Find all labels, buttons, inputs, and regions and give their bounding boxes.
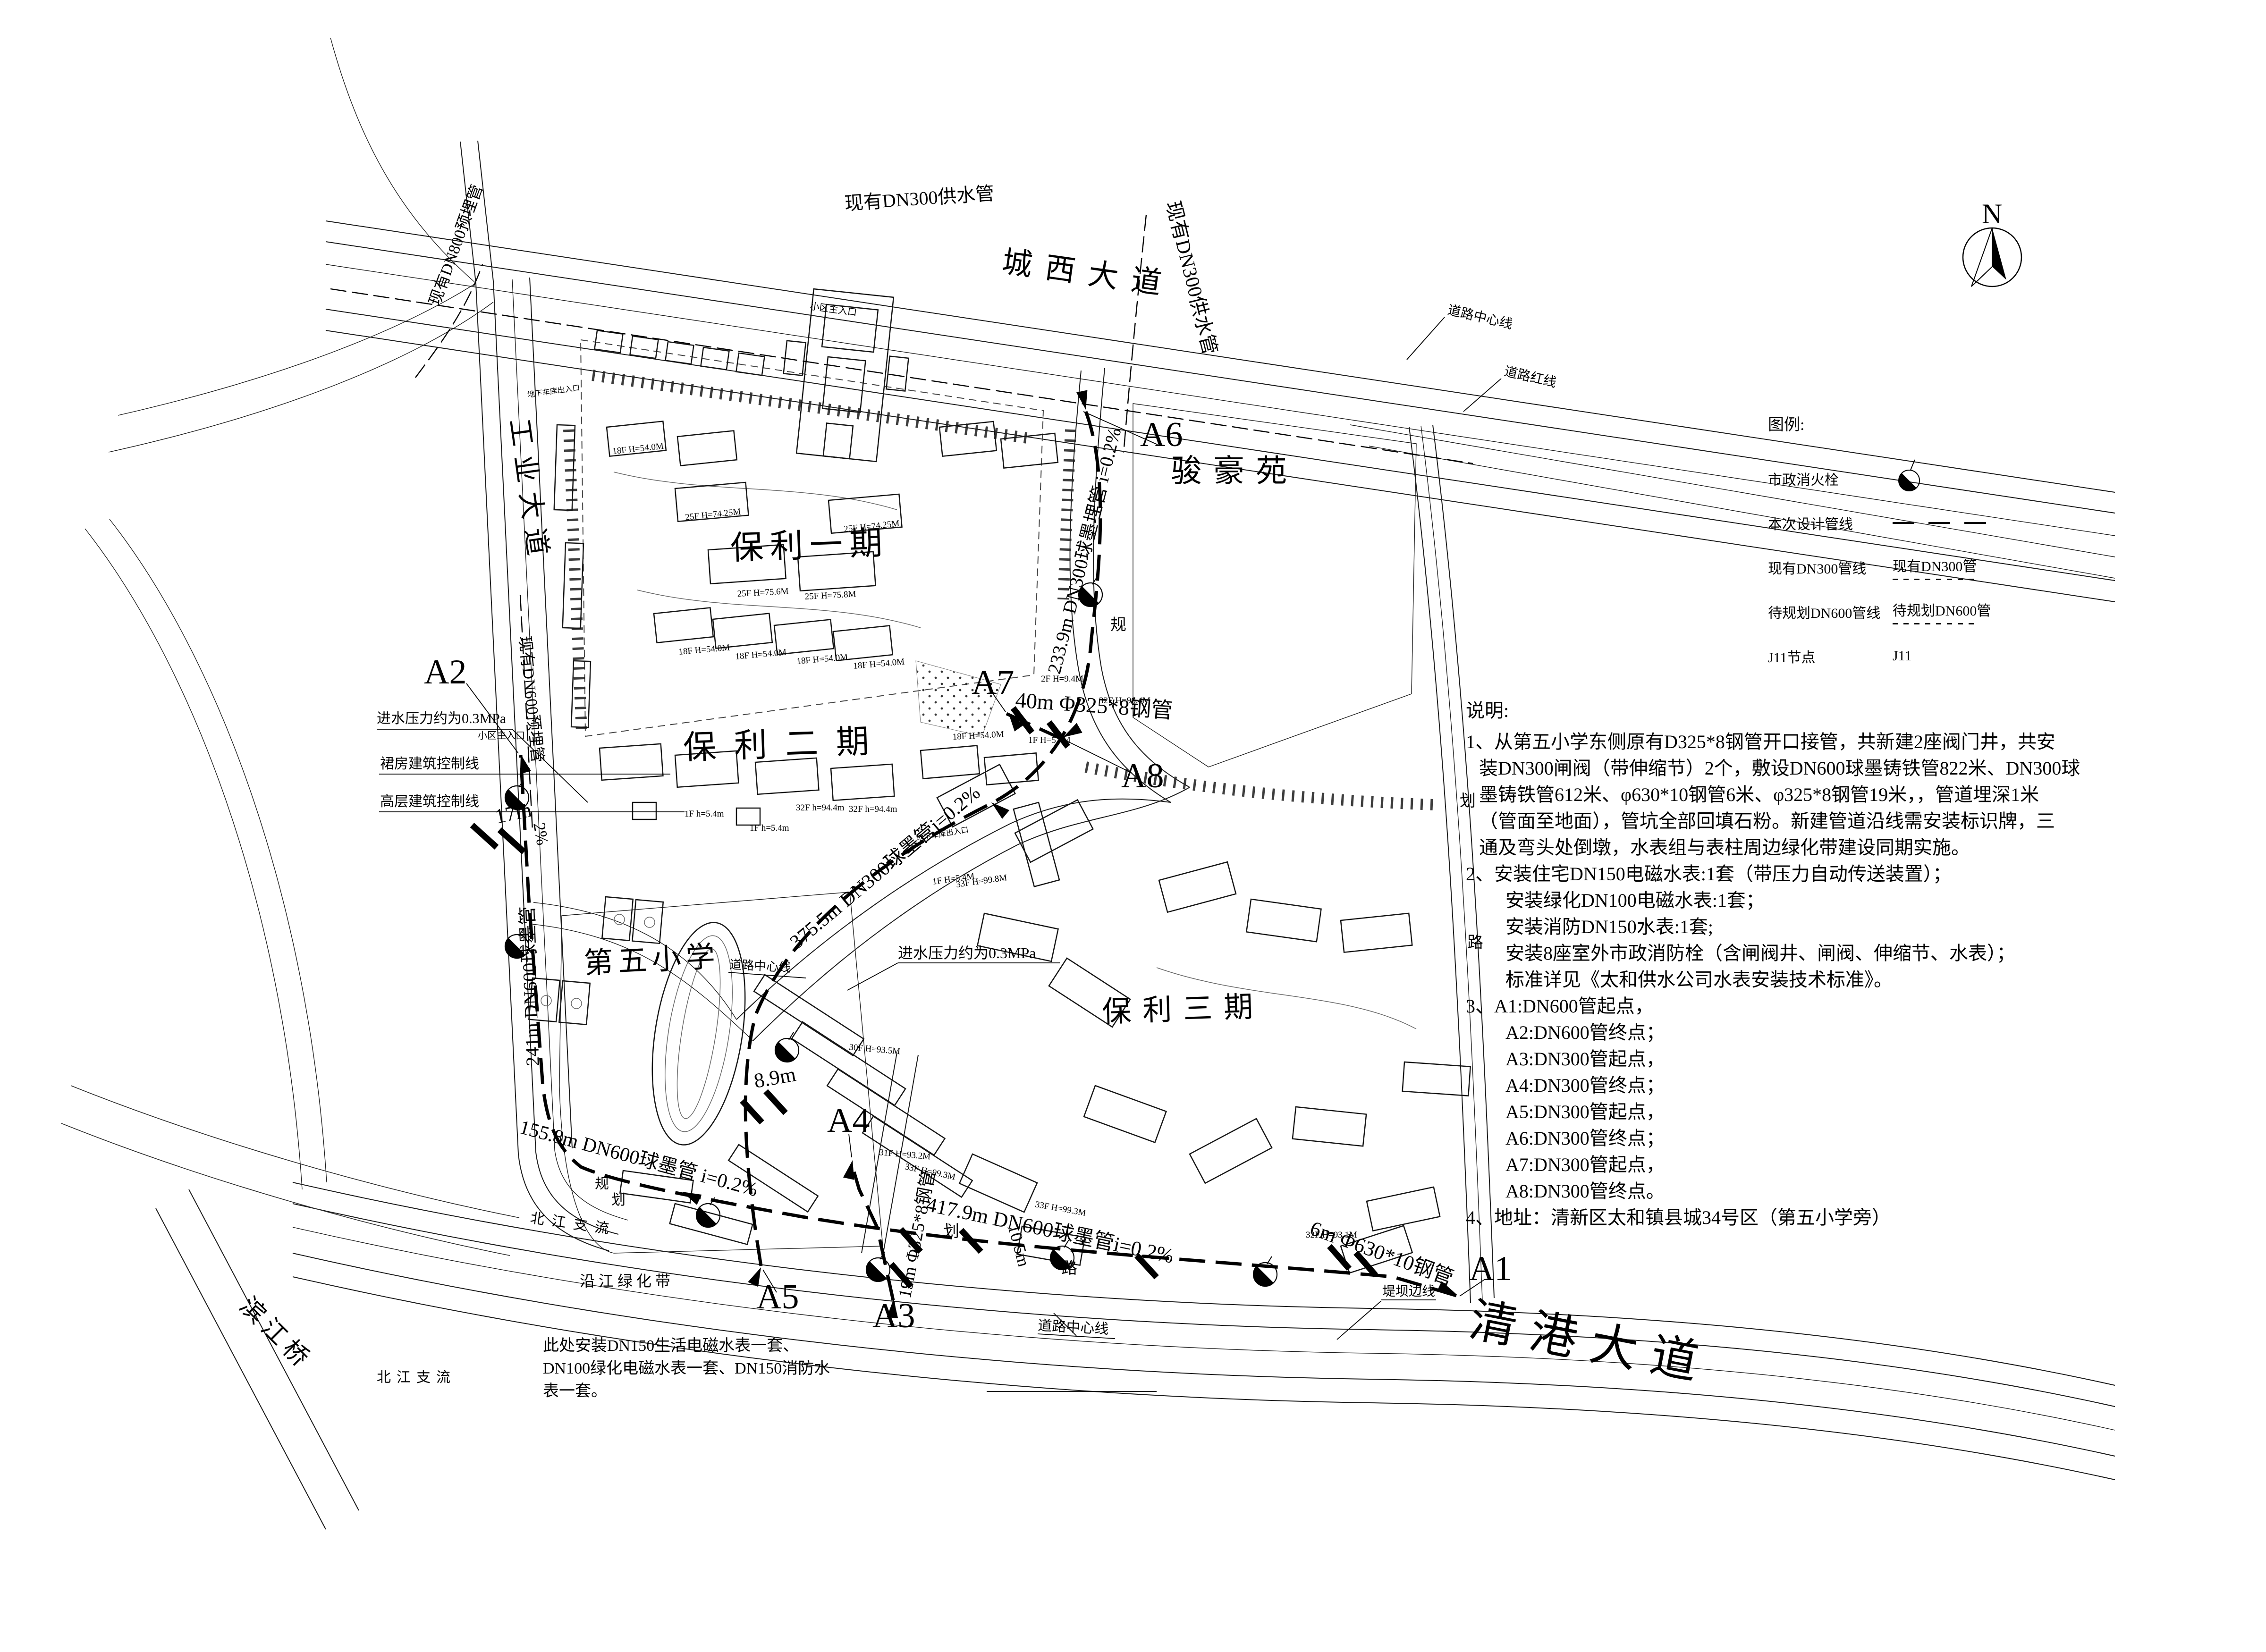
dn300-sample: 现有DN300管 (1893, 555, 1977, 580)
building-label: 30F H=93.5M (849, 1042, 901, 1056)
legend-row-hydrant: 市政消火栓 (1768, 456, 1992, 501)
note-line: A2:DN600管终点； (1466, 1020, 2122, 1046)
note-line: A8:DN300管终点。 (1466, 1178, 2122, 1205)
building-label: 32F h=94.4m (849, 804, 897, 814)
drawing-canvas: 现有DN300供水管 城西大道 现有DN300供水管 道路中心线 道路红线 现有… (0, 0, 2266, 1652)
note-line: 通及弯头处倒墩，水表组与表柱周边绿化带建设同期实施。 (1466, 834, 2122, 861)
legend-label: J11节点 (1768, 646, 1886, 666)
plan-char: 划 (611, 1192, 626, 1208)
note-line: 3、A1:DN600管起点， (1466, 993, 2122, 1020)
building (1341, 913, 1412, 952)
node-label: A8 (1121, 757, 1164, 795)
note-line: A3:DN300管起点， (1466, 1046, 2122, 1072)
legend-value: 现有DN300管 (1893, 555, 1977, 575)
legend-row-node: J11节点 J11 (1768, 634, 1992, 678)
callout: 表一套。 (543, 1382, 607, 1400)
building (563, 543, 583, 628)
area-label: 保利三期 (1101, 991, 1265, 1028)
callout: 高层建筑控制线 (380, 794, 479, 809)
note-line: 安装8座室外市政消防栓（含闸阀井、闸阀、伸缩节、水表）； (1466, 940, 2122, 967)
road-label: 清港大道 (1465, 1294, 1716, 1392)
building (600, 744, 663, 780)
legend-row-design-pipe: 本次设计管线 (1768, 501, 1992, 545)
road-label: 工业大道 (504, 417, 555, 567)
area-label: 骏豪苑 (1171, 454, 1298, 489)
pipe-label: 现有DN600预埋管 (516, 635, 547, 764)
building-label: 1F H=5.4M (1028, 735, 1071, 745)
building (1014, 802, 1059, 886)
building (1001, 433, 1058, 468)
legend-row-dn300: 现有DN300管线 现有DN300管 (1768, 545, 1992, 590)
pipe-label: 155.8m DN600球墨管 i=0.2% (517, 1116, 760, 1201)
building (921, 746, 980, 779)
building (1367, 1187, 1440, 1231)
area-label: 保利二期 (683, 723, 888, 767)
building-labels: 25F H=74.25M 25F H=74.25M 25F H=75.6M 25… (612, 441, 1357, 1240)
hydrant-icon (866, 1252, 890, 1281)
road-label: 堤坝边线 (1382, 1284, 1435, 1299)
pipe-label: 现有DN800预埋管 (426, 182, 486, 308)
road-label: 道路中心线 (729, 958, 791, 975)
building-label: 18F H=54.0M (853, 657, 905, 671)
hydrant-icon (775, 1032, 799, 1062)
legend-label: 现有DN300管线 (1768, 557, 1886, 578)
callout: 小区主入口 (478, 730, 525, 741)
note-line: 装DN300闸阀（带伸缩节）2个，敷设DN600球墨铸铁管822米、DN300球 (1466, 755, 2122, 782)
legend-row-dn600: 待规划DN600管线 待规划DN600管 (1768, 590, 1992, 634)
dim-label: 17m (493, 798, 534, 828)
note-line: 标准详见《太和供水公司水表安装技术标准》。 (1466, 967, 2122, 993)
area-label: 沿江绿化带 (580, 1273, 674, 1290)
plan-char: 划 (943, 1222, 959, 1240)
note-line: 墨铸铁管612米、φ630*10钢管6米、φ325*8钢管19米，，管道埋深1米 (1466, 782, 2122, 808)
building-label: 25F H=75.8M (804, 589, 856, 602)
legend-label: 市政消火栓 (1768, 468, 1886, 489)
road-label: 城西大道 (1000, 245, 1176, 303)
area-label: 北江支流 (377, 1370, 456, 1385)
callout: DN100绿化电磁水表一套、DN150消防水 (543, 1359, 830, 1377)
hydrant-icon (1893, 458, 1926, 499)
building (1246, 899, 1321, 942)
building (736, 808, 760, 825)
node-label: A7 (972, 663, 1014, 702)
node-label: A5 (756, 1278, 799, 1316)
dn300-line-sample (1893, 579, 1976, 580)
plan-char: 路 (1061, 1259, 1077, 1277)
legend-value: 待规划DN600管 (1893, 599, 1991, 620)
callout: 裙房建筑控制线 (380, 756, 479, 772)
building-label: 18F H=54.0M (735, 648, 787, 662)
building-label: 18F H=54.0M (952, 729, 1004, 742)
note-line: 安装绿化DN100电磁水表:1套； (1466, 887, 2122, 914)
building (1190, 1119, 1272, 1183)
building (1084, 1086, 1166, 1143)
note-line: 2、安装住宅DN150电磁水表:1套（带压力自动传送装置）； (1466, 861, 2122, 887)
hydrant-icon (1253, 1256, 1277, 1286)
building-label: 31F H=93.2M (879, 1147, 931, 1162)
building (792, 1022, 905, 1105)
node-label: A6 (1140, 415, 1183, 454)
building (831, 764, 894, 801)
pipe-label: 6m Φ630*10钢管 (1307, 1216, 1457, 1290)
building-label: 18F H=54.0M (678, 643, 730, 657)
area-label: 第五小学 (583, 941, 720, 980)
building-label: 18F H=54.0M (612, 441, 664, 456)
building-label: 32F H=96.4M (1099, 696, 1150, 706)
road-label: 滨江桥 (235, 1292, 318, 1375)
building (1159, 862, 1236, 912)
note-line: A5:DN300管起点， (1466, 1099, 2122, 1125)
note-line: A6:DN300管终点； (1466, 1125, 2122, 1152)
note-line: A4:DN300管终点； (1466, 1072, 2122, 1099)
building (630, 336, 658, 358)
node-label: A3 (872, 1297, 915, 1335)
dim-label: 2% (530, 821, 552, 846)
dn600-sample: 待规划DN600管 (1893, 599, 1991, 624)
callout: 进水压力约为0.3MPa (898, 944, 1036, 961)
callout: 此处安装DN150生活电磁水表一套、 (543, 1337, 799, 1355)
building (654, 607, 713, 642)
plan-char: 规 (595, 1176, 609, 1192)
building (754, 975, 864, 1055)
area-label: 北江支流 (529, 1210, 617, 1238)
legend: 图例: 市政消火栓 本次设计管线 现有DN300管线 现有DN300管 待规划D… (1768, 412, 1992, 678)
notes-block: 说明: 1、从第五小学东侧原有D325*8钢管开口接管，共新建2座阀门井，共安 … (1466, 698, 2122, 1231)
building (677, 430, 737, 465)
legend-label: 本次设计管线 (1768, 513, 1886, 533)
building-label: 33F H=99.3M (1034, 1199, 1087, 1218)
legend-value: J11 (1893, 648, 1912, 664)
building (633, 802, 656, 819)
building-label: 25F H=74.25M (685, 507, 741, 523)
building-label: 2F H=9.4M (1041, 674, 1083, 684)
dn600-line-sample (1893, 623, 1976, 624)
plan-char: 规 (1110, 616, 1126, 634)
node-label: A4 (827, 1101, 870, 1140)
road-label: 道路中心线 (1446, 303, 1514, 332)
pipe-label: 241m DN600球墨管 (516, 906, 543, 1066)
notes-title: 说明: (1466, 698, 2122, 724)
note-line: A7:DN300管起点， (1466, 1152, 2122, 1178)
pipe-label: 现有DN300供水管 (844, 183, 995, 214)
callout: 进水压力约为0.3MPa (377, 711, 506, 726)
note-line: （管面至地面），管坑全部回填石粉。新建管道沿线需安装标识牌，三 (1466, 808, 2122, 834)
node-label: A2 (424, 653, 466, 691)
building-label: 18F H=54.0M (796, 652, 848, 666)
building-label: 25F H=75.6M (737, 586, 789, 599)
building-label: 32F h=94.4m (796, 803, 845, 813)
north-label: N (1982, 198, 2002, 229)
north-arrow-icon: N (1963, 198, 2021, 287)
legend-title: 图例: (1768, 412, 1992, 435)
note-line: 1、从第五小学东侧原有D325*8钢管开口接管，共新建2座阀门井，共安 (1466, 729, 2122, 755)
building-label: 1F h=5.4m (750, 823, 789, 833)
building (665, 342, 693, 364)
note-line: 安装消防DN150水表:1套; (1466, 914, 2122, 940)
building (554, 425, 575, 510)
note-line: 4、地址：清新区太和镇县城34号区（第五小学旁） (1466, 1205, 2122, 1231)
legend-label: 待规划DN600管线 (1768, 601, 1886, 622)
building (594, 330, 623, 353)
design-pipeline-sample (1893, 522, 1992, 524)
node-label: A1 (1469, 1249, 1512, 1288)
road-label: 道路红线 (1503, 364, 1557, 390)
building (1293, 1107, 1366, 1146)
callout: 小区主入口 (809, 301, 857, 318)
design-pipelines (472, 390, 1459, 1318)
building-label: 32F H=93.1M (1306, 1230, 1357, 1240)
dim-label: 8.9m (752, 1062, 797, 1093)
building-label: 1F h=5.4m (685, 809, 724, 819)
